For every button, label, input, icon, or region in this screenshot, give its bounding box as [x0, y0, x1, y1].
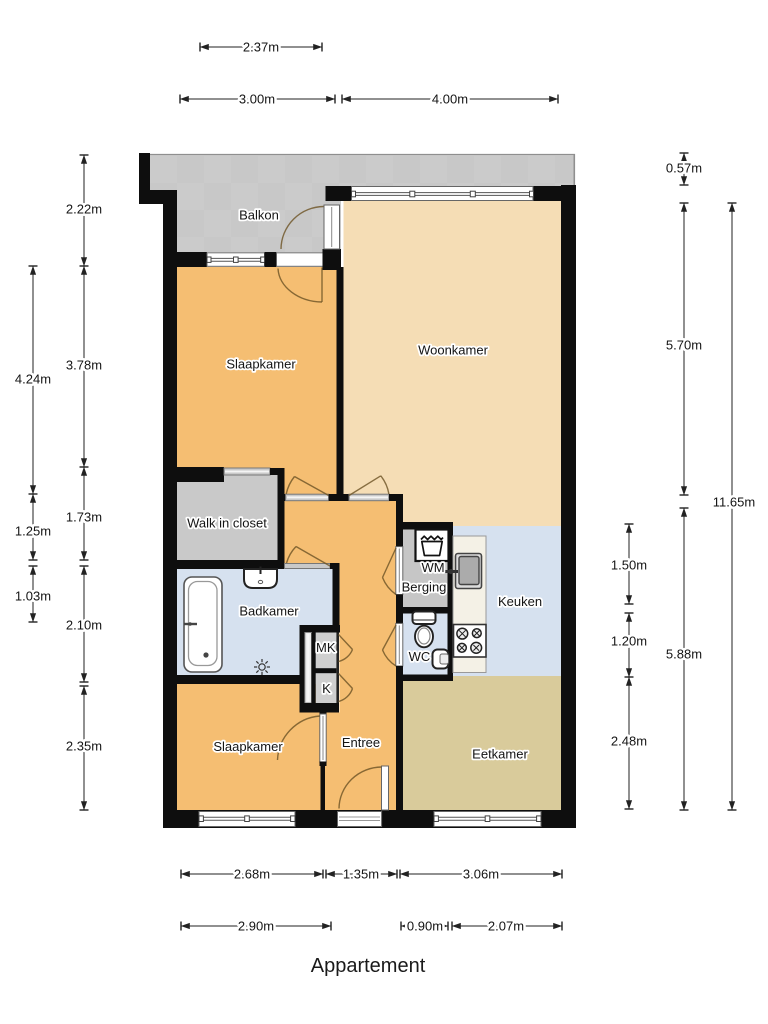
svg-text:5.70m: 5.70m	[666, 338, 702, 353]
svg-text:2.48m: 2.48m	[611, 734, 647, 749]
svg-text:WM: WM	[421, 560, 444, 575]
svg-text:Woonkamer: Woonkamer	[418, 343, 489, 358]
svg-text:Walk in closet: Walk in closet	[187, 516, 267, 531]
svg-text:MK: MK	[316, 640, 336, 655]
svg-text:2.22m: 2.22m	[66, 202, 102, 217]
svg-text:11.65m: 11.65m	[713, 495, 755, 510]
svg-text:2.10m: 2.10m	[66, 618, 102, 633]
svg-text:WC: WC	[409, 649, 431, 664]
svg-text:Eetkamer: Eetkamer	[472, 747, 528, 762]
svg-text:1.73m: 1.73m	[66, 510, 102, 525]
svg-text:2.35m: 2.35m	[66, 739, 102, 754]
svg-text:1.50m: 1.50m	[611, 558, 647, 573]
svg-text:0.57m: 0.57m	[666, 161, 702, 176]
svg-text:5.88m: 5.88m	[666, 647, 702, 662]
svg-text:Slaapkamer: Slaapkamer	[213, 739, 283, 754]
svg-text:1.03m: 1.03m	[15, 589, 51, 604]
svg-text:Badkamer: Badkamer	[239, 604, 299, 619]
svg-text:Appartement: Appartement	[311, 955, 426, 977]
svg-text:4.00m: 4.00m	[432, 92, 468, 107]
svg-text:3.78m: 3.78m	[66, 358, 102, 373]
svg-text:Slaapkamer: Slaapkamer	[226, 357, 296, 372]
svg-text:1.20m: 1.20m	[611, 634, 647, 649]
svg-text:Balkon: Balkon	[239, 208, 279, 223]
svg-text:1.35m: 1.35m	[343, 867, 379, 882]
svg-text:Keuken: Keuken	[498, 594, 542, 609]
svg-text:0.90m: 0.90m	[407, 919, 443, 934]
svg-text:2.90m: 2.90m	[238, 919, 274, 934]
svg-text:2.68m: 2.68m	[234, 867, 270, 882]
svg-text:3.00m: 3.00m	[239, 92, 275, 107]
svg-text:Berging: Berging	[402, 580, 447, 595]
svg-text:Entree: Entree	[342, 735, 380, 750]
svg-text:2.07m: 2.07m	[488, 919, 524, 934]
svg-text:4.24m: 4.24m	[15, 372, 51, 387]
svg-text:3.06m: 3.06m	[463, 867, 499, 882]
svg-text:2.37m: 2.37m	[243, 40, 279, 55]
svg-text:1.25m: 1.25m	[15, 524, 51, 539]
svg-text:K: K	[322, 681, 331, 696]
